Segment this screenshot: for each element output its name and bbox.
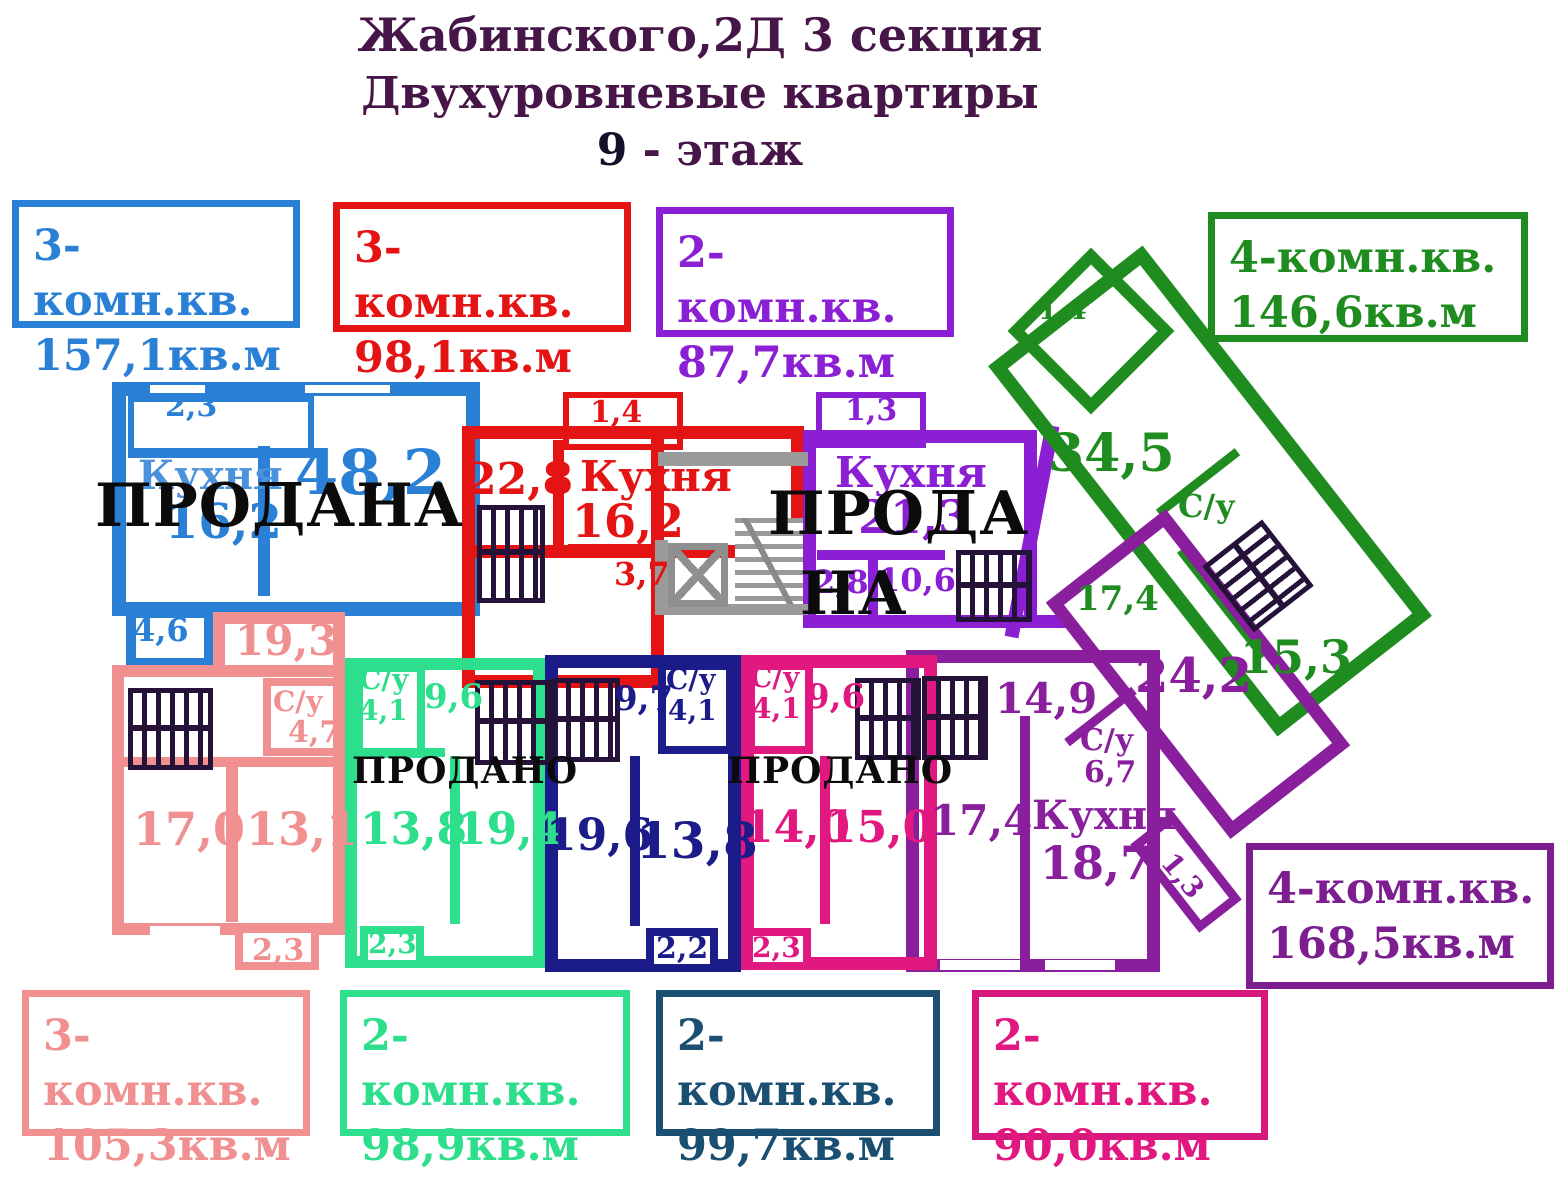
apartment-blue-balcony-outline (128, 396, 314, 456)
room-area-label: 2,2 (656, 934, 708, 964)
legend-springgreen: 2-комн.кв. 98,9кв.м (340, 990, 630, 1136)
legend-magenta-area: 90,0кв.м (993, 1119, 1253, 1174)
room-name-label: С/у (666, 666, 716, 694)
legend-salmon-type: 3-комн.кв. (43, 1009, 295, 1119)
room-area-label: 9,6 (424, 680, 483, 714)
staircase-icon (956, 550, 1032, 622)
room-area-label: 2,3 (368, 930, 417, 958)
floor-plan-page: Жабинского,2Д 3 секция Двухуровневые ква… (0, 0, 1560, 1180)
floor-word: - этаж (627, 125, 803, 176)
elevator-icon (668, 543, 728, 607)
legend-springgreen-type: 2-комн.кв. (361, 1009, 615, 1119)
room-area-label: 24,2 (1135, 652, 1252, 700)
room-area-label: 22,8 (466, 458, 573, 502)
room-area-label: 4,1 (752, 695, 801, 723)
room-area-label: 4,1 (359, 697, 408, 725)
room-area-label: 13,8 (636, 816, 758, 866)
room-area-label: 2,3 (165, 392, 217, 422)
sold-stamp: ПРОДАНА (95, 478, 464, 535)
legend-navy-type: 2-комн.кв. (677, 1009, 925, 1119)
title-line3: 9 - этаж (280, 125, 1120, 176)
floor-number: 9 (597, 125, 628, 176)
room-area-label: 1,3 (845, 396, 897, 426)
staircase-icon (922, 676, 988, 760)
room-area-label: 4,1 (668, 697, 717, 725)
legend-red-area: 98,1кв.м (354, 331, 616, 386)
room-name-label: Кухня (1032, 796, 1177, 836)
room-area-label: 17,4 (1076, 582, 1159, 616)
room-name-label: С/у (1080, 726, 1134, 756)
page-title: Жабинского,2Д 3 секция Двухуровневые ква… (280, 8, 1120, 176)
legend-springgreen-area: 98,9кв.м (361, 1119, 615, 1174)
legend-green-type: 4-комн.кв. (1229, 231, 1513, 286)
legend-green: 4-комн.кв. 146,6кв.м (1208, 212, 1528, 342)
room-area-label: 17,0 (133, 806, 245, 852)
legend-blue: 3-комн.кв. 157,1кв.м (12, 200, 300, 328)
legend-blue-type: 3-комн.кв. (33, 219, 285, 329)
legend-red: 3-комн.кв. 98,1кв.м (333, 202, 631, 332)
room-area-label: 1,4 (1038, 296, 1087, 324)
room-area-label: 13,1 (246, 806, 358, 852)
legend-magenta-type: 2-комн.кв. (993, 1009, 1253, 1119)
title-line1: Жабинского,2Д 3 секция (280, 8, 1120, 62)
legend-magenta: 2-комн.кв. 90,0кв.м (972, 990, 1268, 1140)
legend-navy-area: 99,7кв.м (677, 1119, 925, 1174)
legend-darkpurple-area: 168,5кв.м (1267, 917, 1539, 972)
legend-darkpurple: 4-комн.кв. 168,5кв.м (1246, 843, 1554, 989)
room-area-label: 17,4 (930, 800, 1032, 842)
room-area-label: 2,3 (752, 934, 801, 962)
legend-violet-area: 87,7кв.м (677, 336, 939, 391)
room-area-label: 16,2 (572, 498, 684, 544)
room-area-label: 4,7 (288, 718, 340, 748)
room-area-label: 19,3 (235, 620, 337, 662)
legend-navy: 2-комн.кв. 99,7кв.м (656, 990, 940, 1136)
legend-violet-type: 2-комн.кв. (677, 226, 939, 336)
room-name-label: С/у (359, 666, 409, 694)
room-area-label: 4,6 (133, 614, 189, 646)
room-area-label: 13,8 (360, 808, 467, 852)
window (940, 960, 1020, 970)
room-area-label: 9,7 (614, 682, 673, 716)
sold-stamp: ПРОДАНО (352, 754, 578, 788)
room-name-label: С/у (1178, 490, 1236, 522)
legend-salmon: 3-комн.кв. 105,3кв.м (22, 990, 310, 1136)
title-line2: Двухуровневые квартиры (280, 68, 1120, 119)
sold-stamp: ПРОДАНО (727, 754, 953, 788)
staircase-icon (477, 505, 545, 603)
room-area-label: 1,4 (590, 398, 642, 428)
sold-stamp-line2: НА (800, 566, 908, 623)
room-area-label: 18,7 (1040, 840, 1152, 886)
staircase-icon (128, 688, 213, 770)
room-name-label: Кухня (580, 456, 732, 498)
legend-red-type: 3-комн.кв. (354, 221, 616, 331)
legend-violet: 2-комн.кв. 87,7кв.м (656, 207, 954, 337)
room-area-label: 2,3 (252, 936, 304, 966)
room-area-label: 34,5 (1048, 428, 1175, 480)
room-name-label: С/у (273, 688, 323, 716)
legend-salmon-area: 105,3кв.м (43, 1119, 295, 1174)
legend-darkpurple-type: 4-комн.кв. (1267, 862, 1539, 917)
window (305, 385, 390, 393)
window (150, 926, 220, 935)
room-area-label: 3,7 (614, 558, 670, 590)
room-area-label: 6,7 (1084, 758, 1136, 788)
legend-green-area: 146,6кв.м (1229, 286, 1513, 341)
sold-stamp-line1: ПРОДА (768, 486, 1029, 543)
window (1045, 960, 1115, 970)
room-area-label: 14,9 (995, 678, 1097, 720)
room-area-label: 9,6 (806, 680, 865, 714)
room-area-label: 15,0 (826, 806, 933, 850)
room-area-label: 15,3 (1240, 634, 1352, 680)
room-name-label: С/у (750, 664, 800, 692)
legend-blue-area: 157,1кв.м (33, 329, 285, 384)
